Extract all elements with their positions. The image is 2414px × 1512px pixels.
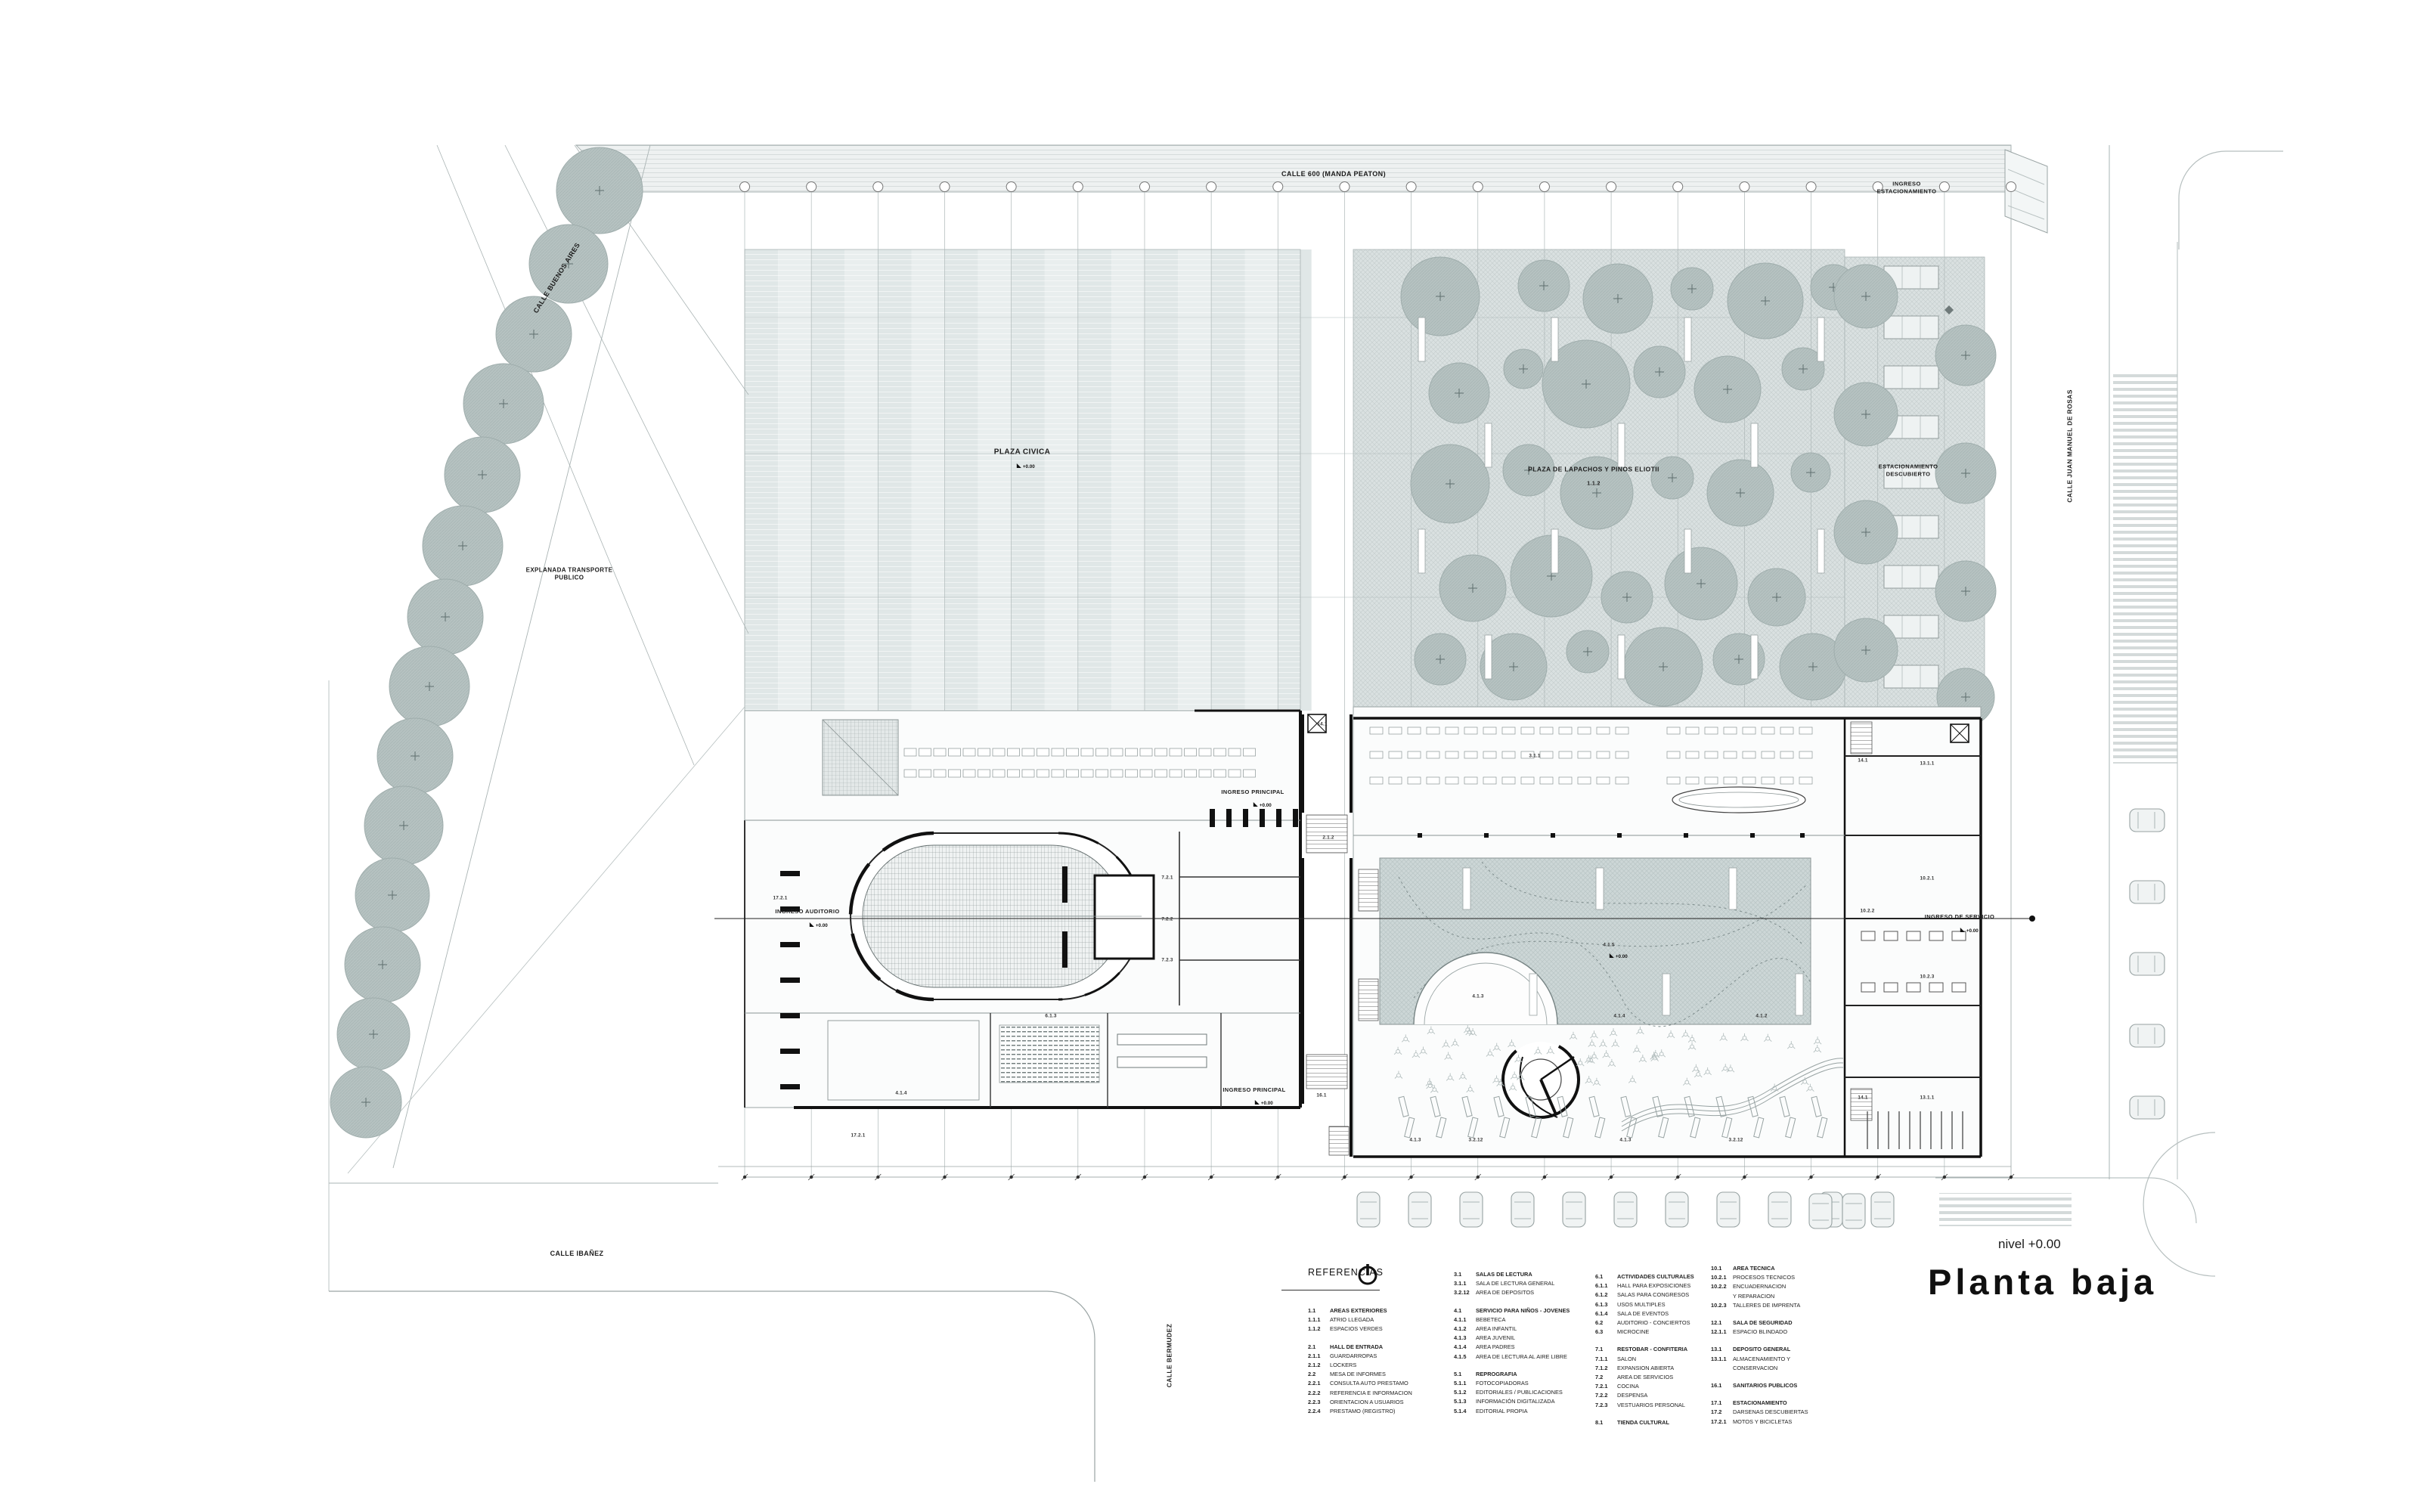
legend-item: 7.1RESTOBAR - CONFITERIA <box>1595 1345 1694 1354</box>
legend-column-1: 1.1AREAS EXTERIORES1.1.1ATRIO LLEGADA1.1… <box>1308 1306 1412 1416</box>
level-marker: +0.00 <box>1255 1100 1273 1106</box>
legend-item: 10.2.1PROCESOS TECNICOS <box>1711 1273 1808 1282</box>
legend-item: 2.2.2REFERENCIA E INFORMACION <box>1308 1389 1412 1398</box>
legend-item: 3.1SALAS DE LECTURA <box>1454 1270 1570 1279</box>
legend-item: 6.1.3USOS MULTIPLES <box>1595 1300 1694 1309</box>
site-label: INGRESO PRINCIPAL <box>1222 1086 1285 1094</box>
legend-item: 6.1.4SALA DE EVENTOS <box>1595 1309 1694 1318</box>
references-legend: REFERENCIAS 1.1AREAS EXTERIORES1.1.1ATRI… <box>1281 1261 1886 1442</box>
legend-column-4: 10.1AREA TECNICA10.2.1PROCESOS TECNICOS1… <box>1711 1264 1808 1427</box>
legend-item: 4.1.1BEBETECA <box>1454 1315 1570 1325</box>
legend-item: 17.1ESTACIONAMIENTO <box>1711 1399 1808 1408</box>
legend-item: 2.2.4PRESTAMO (REGISTRO) <box>1308 1407 1412 1416</box>
room-code-label: 4.1.4 <box>1613 1014 1625 1019</box>
room-code-label: 7.2.2 <box>1161 917 1173 922</box>
level-marker: +0.00 <box>1960 928 1979 934</box>
legend-item: 1.1AREAS EXTERIORES <box>1308 1306 1412 1315</box>
legend-item: 2.2.1CONSULTA AUTO PRESTAMO <box>1308 1379 1412 1388</box>
legend-item: 5.1.2EDITORIALES / PUBLICACIONES <box>1454 1388 1570 1397</box>
legend-item: 4.1.4AREA PADRES <box>1454 1343 1570 1352</box>
legend-item: 2.1.2LOCKERS <box>1308 1361 1412 1370</box>
legend-item: 2.2MESA DE INFORMES <box>1308 1370 1412 1379</box>
legend-item: 12.1SALA DE SEGURIDAD <box>1711 1318 1808 1328</box>
legend-item: 13.1DEPOSITO GENERAL <box>1711 1345 1808 1354</box>
site-label: EXPLANADA TRANSPORTE PUBLICO <box>526 567 613 583</box>
room-code-label: 10.2.1 <box>1920 876 1935 881</box>
site-label: CALLE BUENOS AIRES <box>531 241 582 315</box>
room-code-label: 2.1.2 <box>1322 835 1334 841</box>
room-code-label: 7.2.1 <box>1161 875 1173 881</box>
legend-item: 10.2.3TALLERES DE IMPRENTA <box>1711 1301 1808 1310</box>
site-label: CALLE 600 (MANDA PEATON) <box>1281 170 1386 179</box>
legend-item: 6.1ACTIVIDADES CULTURALES <box>1595 1272 1694 1281</box>
site-label: 1.1.2 <box>1587 480 1601 487</box>
room-code-label: 17.2.1 <box>773 896 788 901</box>
room-code-label: 16.1 <box>1316 1093 1326 1098</box>
level-marker: +0.00 <box>1253 802 1272 808</box>
legend-column-2: 3.1SALAS DE LECTURA3.1.1SALA DE LECTURA … <box>1454 1270 1570 1416</box>
legend-item: 10.1AREA TECNICA <box>1711 1264 1808 1273</box>
legend-item: 4.1SERVICIO PARA NIÑOS - JOVENES <box>1454 1306 1570 1315</box>
site-label: INGRESO PRINCIPAL <box>1221 789 1284 796</box>
room-code-label: 4.1.3 <box>1409 1138 1421 1143</box>
legend-item: 2.1.1GUARDARROPAS <box>1308 1352 1412 1361</box>
legend-item: 7.2.3VESTUARIOS PERSONAL <box>1595 1401 1694 1410</box>
legend-item: 2.2.3ORIENTACION A USUARIOS <box>1308 1398 1412 1407</box>
legend-item: 6.3MICROCINE <box>1595 1328 1694 1337</box>
room-code-label: 4.1.5 <box>1603 943 1614 948</box>
room-code-label: 4.1.3 <box>1472 994 1483 999</box>
site-label: INGRESO AUDITORIO <box>775 908 839 916</box>
level-marker: +0.00 <box>1610 953 1628 959</box>
legend-item: 1.1.1ATRIO LLEGADA <box>1308 1315 1412 1325</box>
legend-divider <box>1281 1290 1380 1290</box>
legend-item: 2.1HALL DE ENTRADA <box>1308 1343 1412 1352</box>
legend-item: 17.2.1MOTOS Y BICICLETAS <box>1711 1417 1808 1427</box>
legend-item: 7.2AREA DE SERVICIOS <box>1595 1373 1694 1382</box>
legend-column-3: 6.1ACTIVIDADES CULTURALES6.1.1HALL PARA … <box>1595 1272 1694 1427</box>
legend-item: 4.1.5AREA DE LECTURA AL AIRE LIBRE <box>1454 1352 1570 1362</box>
room-code-label: 13.1.1 <box>1920 1095 1935 1101</box>
north-arrow-icon <box>1357 1263 1380 1287</box>
room-code-label: 7.2.3 <box>1161 958 1173 963</box>
legend-item: 1.1.2ESPACIOS VERDES <box>1308 1325 1412 1334</box>
room-code-label: 13.1.1 <box>1920 761 1935 767</box>
room-code-label: 4.1.3 <box>1619 1138 1631 1143</box>
room-code-label: 14.1 <box>1317 722 1327 727</box>
room-code-label: 3.2.12 <box>1469 1138 1483 1143</box>
legend-item: 6.1.1HALL PARA EXPOSICIONES <box>1595 1281 1694 1290</box>
site-label: CALLE IBAÑEZ <box>550 1250 604 1259</box>
legend-item: 13.1.1ALMACENAMIENTO Y CONSERVACION <box>1711 1355 1808 1373</box>
site-label: INGRESO DE SERVICIO <box>1925 913 1994 921</box>
legend-item: 4.1.3AREA JUVENIL <box>1454 1334 1570 1343</box>
legend-item: 10.2.2ENCUADERNACION Y REPARACION <box>1711 1282 1808 1300</box>
room-code-label: 17.2.1 <box>851 1133 866 1139</box>
legend-item: 6.1.2SALAS PARA CONGRESOS <box>1595 1290 1694 1300</box>
room-code-label: 10.2.3 <box>1920 974 1935 980</box>
legend-item: 8.1TIENDA CULTURAL <box>1595 1418 1694 1427</box>
page-title: Planta baja <box>1928 1261 2157 1303</box>
legend-item: 6.2AUDITORIO - CONCIERTOS <box>1595 1318 1694 1328</box>
level-note: nivel +0.00 <box>1998 1237 2061 1252</box>
site-label: CALLE BERMUDEZ <box>1165 1324 1173 1387</box>
legend-item: 5.1.4EDITORIAL PROPIA <box>1454 1407 1570 1416</box>
legend-item: 3.1.1SALA DE LECTURA GENERAL <box>1454 1279 1570 1288</box>
legend-item: 12.1.1ESPACIO BLINDADO <box>1711 1328 1808 1337</box>
room-code-label: 3.1.1 <box>1529 754 1540 759</box>
site-label: PLAZA DE LAPACHOS Y PINOS ELIOTII <box>1528 465 1659 473</box>
legend-item: 3.2.12AREA DE DEPOSITOS <box>1454 1288 1570 1297</box>
legend-item: 5.1.1FOTOCOPIADORAS <box>1454 1379 1570 1388</box>
legend-item: 5.1REPROGRAFIA <box>1454 1370 1570 1379</box>
legend-item: 7.1.1SALON <box>1595 1355 1694 1364</box>
level-marker: +0.00 <box>1017 463 1035 469</box>
legend-item: 7.2.1COCINA <box>1595 1382 1694 1391</box>
room-code-label: 14.1 <box>1858 1095 1867 1101</box>
floor-plan-sheet: CALLE 600 (MANDA PEATON)CALLE BUENOS AIR… <box>0 0 2414 1512</box>
legend-item: 7.2.2DESPENSA <box>1595 1391 1694 1400</box>
legend-item: 17.2DARSENAS DESCUBIERTAS <box>1711 1408 1808 1417</box>
site-label: INGRESO ESTACIONAMIENTO <box>1877 180 1937 195</box>
legend-item: 5.1.3INFORMACIÓN DIGITALIZADA <box>1454 1397 1570 1406</box>
site-label: CALLE JUAN MANUEL DE ROSAS <box>2065 389 2074 503</box>
legend-item: 4.1.2AREA INFANTIL <box>1454 1325 1570 1334</box>
room-code-label: 3.2.12 <box>1729 1138 1743 1143</box>
room-code-label: 4.1.2 <box>1755 1014 1767 1019</box>
legend-item: 7.1.2EXPANSION ABIERTA <box>1595 1364 1694 1373</box>
legend-item: 16.1SANITARIOS PUBLICOS <box>1711 1381 1808 1390</box>
site-label: PLAZA CIVICA <box>994 448 1050 457</box>
room-code-label: 14.1 <box>1858 758 1867 764</box>
level-marker: +0.00 <box>810 922 828 928</box>
room-code-label: 4.1.4 <box>895 1091 906 1096</box>
site-label: ESTACIONAMIENTO DESCUBIERTO <box>1879 463 1938 478</box>
room-code-label: 6.1.3 <box>1045 1014 1056 1019</box>
room-code-label: 10.2.2 <box>1861 909 1875 914</box>
